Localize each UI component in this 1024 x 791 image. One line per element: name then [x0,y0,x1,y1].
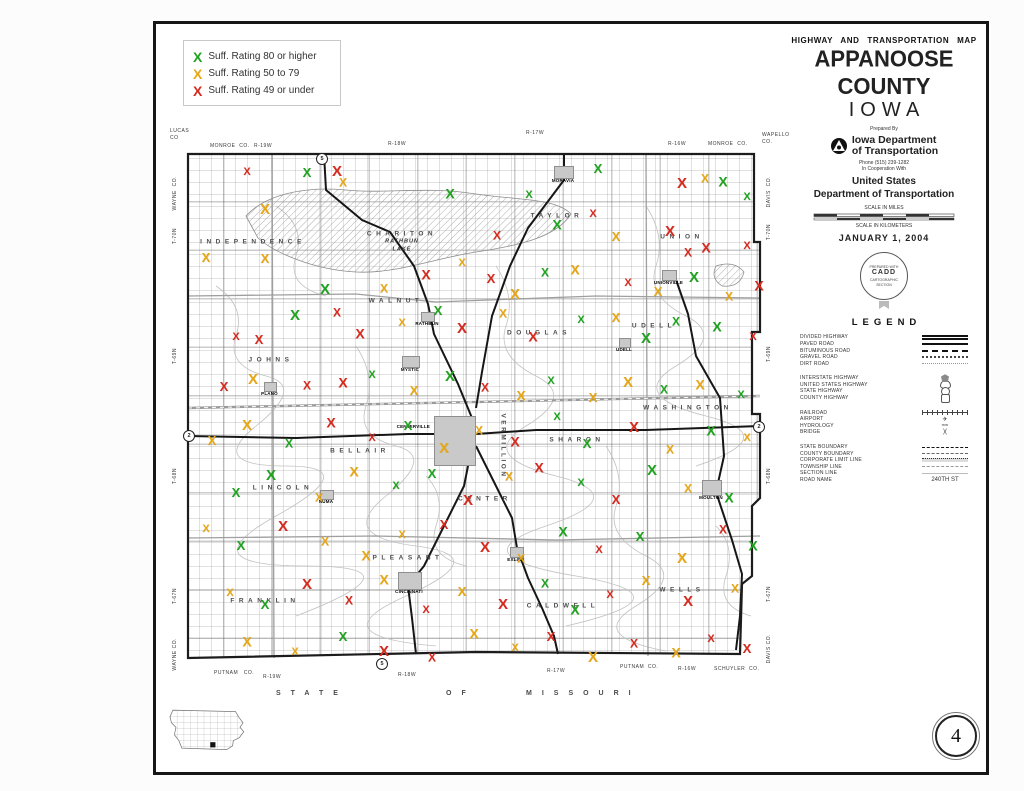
sufficiency-mark-r: X [719,523,727,535]
sufficiency-mark-g: X [404,419,413,432]
suff-legend-item: XSuff. Rating 50 to 79 [193,65,331,82]
sufficiency-mark-g: X [303,166,312,179]
legend-symbol-county-boundary-icon [920,451,970,457]
legend-label: ROAD NAME [800,477,832,483]
page-number: 4 [935,715,977,757]
scale-miles-label: SCALE IN MILES [784,205,984,211]
legend-row: HYDROLOGY≈≈ [800,423,970,430]
sufficiency-mark-r: X [421,267,430,281]
township-label: DOUGLAS [507,330,571,337]
legend-label: DIRT ROAD [800,361,829,367]
town-area [398,572,422,590]
legend-symbol-bituminous-road-icon [920,348,970,354]
town-label: UDELL [616,347,632,352]
sufficiency-mark-y: X [208,434,217,447]
agency-line2: of Transportation [852,146,938,157]
sufficiency-mark-g: X [647,463,657,478]
legend-label: PAVED ROAD [800,341,834,347]
sufficiency-mark-y: X [642,574,651,587]
sufficiency-mark-r: X [528,329,537,343]
suff-legend-label: Suff. Rating 80 or higher [208,51,316,62]
sufficiency-mark-g: X [672,315,680,327]
page-number-badge: 4 [932,712,980,760]
legend-row: GRAVEL ROAD [800,354,970,361]
sufficiency-mark-g: X [718,174,727,188]
sufficiency-mark-r: X [612,493,621,506]
township-label: PLEASANT [372,555,443,562]
suff-legend-item: XSuff. Rating 49 or under [193,82,331,99]
sufficiency-mark-y: X [475,424,483,436]
scale-bar: SCALE IN MILES SCALE IN KILOMETERS [784,205,984,229]
edge-label-top: LUCAS CO [170,128,189,141]
legend-swatch [941,374,949,382]
cooperation-line: In Cooperation With [784,166,984,172]
sufficiency-mark-y: X [684,482,692,494]
legend-swatch [922,343,968,346]
sufficiency-mark-y: X [623,375,633,390]
sufficiency-mark-r: X [481,381,489,393]
sufficiency-mark-g: X [541,577,549,589]
sufficiency-mark-y: X [510,287,520,302]
legend-label: GRAVEL ROAD [800,354,838,360]
sufficiency-mark-y: X [731,582,739,594]
legend-swatch [941,394,950,403]
sufficiency-mark-r: X [440,518,449,531]
sufficiency-mark-y: X [398,318,405,329]
edge-label-bottom: R-17W [547,668,565,675]
sufficiency-mark-g: X [724,490,733,504]
legend-swatch [922,410,968,415]
legend-symbol-paved-road-icon [920,341,970,347]
route-shield: 2 [753,421,765,433]
county-title: APPANOOSE COUNTY [784,45,984,100]
sufficiency-mark-g: X [552,217,561,231]
sufficiency-mark-g: X [641,331,651,346]
sufficiency-mark-r: X [754,278,763,292]
town-area [702,480,722,496]
sufficiency-mark-g: X [237,539,246,552]
suff-legend-label: Suff. Rating 50 to 79 [208,68,299,79]
sufficiency-mark-r: X [629,420,639,435]
sufficiency-mark-y: X [517,552,525,564]
sufficiency-mark-r: X [326,415,335,429]
iowa-dot-logo-icon [830,137,848,155]
legend-glyph: ≈≈ [942,423,949,429]
township-label: WALNUT [369,298,424,305]
sufficiency-mark-g: X [541,266,549,278]
sufficiency-mark-y: X [439,441,449,456]
missouri-border-label: OF [446,690,476,697]
sufficiency-mark-y: X [666,443,674,455]
sufficiency-mark-g: X [706,423,715,437]
scale-km-label: SCALE IN KILOMETERS [784,223,984,229]
edge-label-top: R-16W [668,141,686,148]
legend-row: BRIDGE)( [800,429,970,436]
legend-row: COUNTY HIGHWAY [800,395,970,402]
sufficiency-mark-g: X [547,376,554,387]
sufficiency-mark-r: X [487,272,496,285]
legend-row: TOWNSHIP LINE [800,464,970,471]
edge-label-top: R-19W [254,143,272,150]
suff-legend-label: Suff. Rating 49 or under [208,85,314,96]
legend-label: BRIDGE [800,429,820,435]
sufficiency-mark-y: X [260,202,270,217]
sufficiency-mark-y: X [654,285,663,298]
sufficiency-mark-y: X [588,650,598,665]
map-annotations: INDEPENDENCECHARITONTAYLORUNIONJOHNSWALN… [176,146,776,686]
township-label: UDELL [632,323,676,330]
sufficiency-mark-y: X [380,282,388,294]
iowa-locator-inset [164,704,246,763]
sufficiency-mark-g: X [266,468,276,483]
sufficiency-mark-y: X [570,262,579,276]
sufficiency-mark-r: X [232,332,239,343]
sufficiency-mark-y: X [202,251,211,264]
us-dot-name: United States Department of Transportati… [784,176,984,201]
sufficiency-mark-g: X [748,538,757,552]
sufficiency-mark-r: X [606,590,613,601]
sufficiency-mark-y: X [612,230,621,243]
sufficiency-mark-y: X [379,572,388,586]
seal-ribbon [879,301,889,309]
legend-items: DIVIDED HIGHWAYPAVED ROADBITUMINOUS ROAD… [784,334,984,483]
legend-label: AIRPORT [800,416,824,422]
sufficiency-mark-r: X [743,642,752,655]
missouri-border-label: STATE [276,690,348,697]
sufficiency-mark-g: X [660,383,668,395]
edge-label-right: T-67N [766,586,773,602]
legend-symbol-road-name-icon: 240TH ST [920,477,970,483]
sufficiency-mark-g: X [583,437,592,450]
sufficiency-mark-y: X [612,311,621,324]
edge-label-bottom: PUTNAM CO. [620,664,658,671]
sufficiency-mark-g: X [285,437,293,449]
sufficiency-mark-r: X [624,278,631,289]
sufficiency-mark-g: X [558,524,567,538]
sufficiency-mark-r: X [345,594,353,606]
township-label: BELLAIR [330,448,390,455]
township-label: CALDWELL [527,603,599,610]
legend-symbol-section-line-icon [920,470,970,476]
appanoose-highlight [210,742,215,747]
sufficiency-mark-y: X [505,470,513,482]
route-shield: 5 [316,153,328,165]
edge-label-left: WAYNE CO. [172,176,179,210]
sufficiency-mark-y: X [677,551,687,566]
legend-label: COUNTY BOUNDARY [800,451,854,457]
sufficiency-mark-r: X [707,634,714,645]
sufficiency-mark-g: X [290,308,300,323]
legend-swatch [922,458,968,462]
sufficiency-mark-y: X [398,530,405,541]
sufficiency-mark-g: X [636,530,645,543]
edge-label-right: DAVIS CO. [766,634,773,663]
sufficiency-mark-g: X [737,390,744,401]
sufficiency-mark-y: X [516,388,525,402]
sufficiency-mark-r: X [422,605,429,616]
legend-row: DIVIDED HIGHWAY [800,334,970,341]
legend-symbol-hydrology-icon: ≈≈ [920,423,970,429]
sufficiency-mark-g: X [392,481,399,492]
township-label: CHARITON [367,231,437,238]
edge-label-right: T-68N [766,468,773,484]
edge-label-top: R-18W [388,141,406,148]
legend-symbol-township-line-icon [920,464,970,470]
sufficiency-mark-g: X [570,602,579,616]
township-label: SHARON [549,437,604,444]
sufficiency-mark-y: X [202,524,209,535]
legend-symbol-state-boundary-icon [920,444,970,450]
legend-label: BITUMINOUS ROAD [800,348,850,354]
sufficiency-mark-g: X [368,370,375,381]
edge-label-bottom: R-19W [263,674,281,681]
sufficiency-mark-r: X [278,519,288,534]
edge-label-bottom: PUTNAM CO. [214,670,254,677]
legend-label: STATE BOUNDARY [800,444,848,450]
lake-label-line2: LAKE [385,246,419,254]
sufficiency-mark-y: X [242,634,251,648]
sufficiency-mark-y: X [291,647,298,658]
sufficiency-mark-g: X [445,186,454,200]
sufficiency-mark-g: X [320,282,330,297]
title-block: HIGHWAY AND TRANSPORTATION MAP APPANOOSE… [784,36,984,483]
state-title: IOWA [784,99,984,122]
legend-label: UNITED STATES HIGHWAY [800,382,868,388]
town-label: CENTERVILLE [397,424,430,429]
suff-legend-item: XSuff. Rating 80 or higher [193,48,331,65]
sufficiency-mark-r: X [677,176,687,191]
edge-label-left: T-70N [172,228,179,244]
sufficiency-mark-r: X [493,229,501,241]
route-shield: 5 [376,658,388,670]
sufficiency-mark-r: X [498,597,508,612]
legend-row: DIRT ROAD [800,360,970,367]
x-mark-icon: X [193,84,202,98]
sufficiency-mark-g: X [577,478,584,489]
sufficiency-mark-g: X [445,369,455,384]
legend-swatch [922,350,968,352]
legend-row: INTERSTATE HIGHWAY [800,375,970,382]
sufficiency-mark-g: X [232,486,241,499]
route-shield: 2 [183,430,195,442]
sufficiency-mark-r: X [683,594,693,609]
sufficiency-mark-r: X [547,630,556,643]
sufficiency-mark-r: X [255,333,264,346]
missouri-border-label: MISSOURI [526,690,641,697]
map-sheet: XSuff. Rating 80 or higherXSuff. Rating … [153,21,989,775]
edge-label-bottom: SCHUYLER CO. [714,666,759,673]
sufficiency-mark-r: X [220,380,229,393]
sufficiency-mark-y: X [458,258,465,269]
seal-line2: CADD [872,269,896,278]
sufficiency-mark-g: X [577,315,584,326]
sufficiency-mark-r: X [589,209,596,220]
sufficiency-mark-y: X [725,290,733,302]
legend-row: BITUMINOUS ROAD [800,347,970,354]
sufficiency-mark-g: X [428,467,437,480]
sufficiency-mark-y: X [671,645,680,659]
legend-label: RAILROAD [800,410,827,416]
sufficiency-mark-y: X [242,418,252,433]
legend-row: STATE BOUNDARY [800,444,970,451]
legend-glyph: )( [943,429,947,435]
town-label: MORAVIA [552,178,574,183]
legend-gap [800,436,970,444]
legend-symbol-interstate-highway-icon [920,375,970,381]
legend-row: PAVED ROAD [800,341,970,348]
sufficiency-mark-r: X [595,545,602,556]
sufficiency-mark-r: X [665,224,675,239]
legend-row: AIRPORT✈ [800,416,970,423]
seal-line4: SECTION [876,283,892,287]
edge-label-bottom: R-16W [678,666,696,673]
sufficiency-mark-r: X [684,246,692,258]
x-mark-icon: X [193,67,202,81]
edge-label-left: T-68N [172,468,179,484]
x-mark-icon: X [193,50,202,64]
sufficiency-mark-r: X [457,321,467,336]
sufficiency-mark-y: X [695,377,704,391]
sufficiency-mark-g: X [594,162,603,175]
township-label: JOHNS [249,357,294,364]
edge-label-right: T-69N [766,346,773,362]
legend-label: HYDROLOGY [800,423,834,429]
sufficiency-mark-y: X [248,372,258,387]
sufficiency-mark-g: X [553,412,560,423]
sufficiency-mark-g: X [689,270,699,285]
cadd-seal: PREPARED WITH CADD CARTOGRAPHIC SECTION [860,252,908,300]
legend-symbol-bridge-icon: )( [920,429,970,435]
prepared-by-label: Prepared By [784,126,984,132]
sufficiency-mark-g: X [712,319,721,333]
legend-label: INTERSTATE HIGHWAY [800,375,859,381]
sufficiency-mark-y: X [511,643,518,654]
edge-label-top: MONROE CO. [210,143,250,150]
sufficiency-mark-r: X [333,306,341,318]
legend-swatch [922,447,968,448]
edge-label-top: R-17W [526,130,544,137]
sufficiency-mark-g: X [525,190,532,201]
legend-swatch [922,363,968,364]
legend-label: CORPORATE LIMIT LINE [800,457,862,463]
agency-row: Iowa Department of Transportation [784,135,984,157]
legend-swatch [922,473,968,474]
sufficiency-mark-r: X [480,540,490,555]
town-label: RATHBUN [415,321,438,326]
sufficiency-mark-y: X [261,252,270,265]
sufficiency-mark-g: X [261,598,270,611]
legend-row: CORPORATE LIMIT LINE [800,457,970,464]
edge-label-bottom: R-18W [398,672,416,679]
edge-label-left: T-69N [172,348,179,364]
legend-symbol-county-highway-icon [920,395,970,401]
sufficiency-mark-r: X [743,241,750,252]
legend-swatch [922,356,968,358]
town-label: CINCINNATI [395,589,423,594]
sufficiency-mark-r: X [463,493,473,508]
legend-heading: LEGEND [784,317,984,328]
edge-label-left: T-67N [172,588,179,604]
legend-symbol-airport-icon: ✈ [920,416,970,422]
legend-swatch [922,335,968,340]
sufficiency-mark-y: X [410,384,419,397]
sufficiency-mark-r: X [338,375,347,389]
legend-label: TOWNSHIP LINE [800,464,842,470]
sufficiency-mark-r: X [701,240,710,254]
legend-symbol-dirt-road-icon [920,361,970,367]
sufficiency-mark-y: X [499,307,507,319]
township-label: LINCOLN [253,485,313,492]
sufficiency-mark-y: X [589,391,598,404]
sufficiency-mark-y: X [361,548,370,562]
sufficiency-mark-g: X [743,192,750,203]
sufficiency-mark-r: X [368,433,375,444]
legend-label: STATE HIGHWAY [800,388,843,394]
legend-symbol-railroad-icon [920,410,970,416]
legend-row: COUNTY BOUNDARY [800,450,970,457]
town-label: MYSTIC [401,367,419,372]
sufficiency-mark-r: X [303,379,311,391]
township-label: WASHINGTON [643,405,733,412]
edge-label-right: DAVIS CO. [766,176,773,207]
county-map: INDEPENDENCECHARITONTAYLORUNIONJOHNSWALN… [170,124,786,706]
township-label: INDEPENDENCE [200,239,306,246]
sufficiency-mark-r: X [749,332,756,343]
edge-label-right: T-70N [766,224,773,240]
sufficiency-mark-r: X [355,326,364,340]
sufficiency-mark-r: X [243,167,250,178]
sufficiency-mark-r: X [534,460,543,474]
town-label: MOULTON [699,495,723,500]
sufficiency-mark-r: X [428,651,436,663]
sufficiency-mark-y: X [701,172,709,184]
sufficiency-mark-g: X [434,304,443,317]
legend-row: ROAD NAME240TH ST [800,477,970,484]
sufficiency-mark-r: X [510,434,519,448]
scale-ruler [809,212,959,222]
lake-label: RATHBUNLAKE [385,238,419,253]
legend-gap [800,367,970,375]
sufficiency-mark-y: X [226,588,233,599]
edge-label-left: WAYNE CO. [172,638,179,671]
legend-label: DIVIDED HIGHWAY [800,334,848,340]
sufficiency-mark-y: X [458,585,467,598]
map-type-title: HIGHWAY AND TRANSPORTATION MAP [784,36,984,45]
legend-symbol-corporate-limit-line-icon [920,457,970,463]
legend-swatch [922,453,968,454]
sufficiency-mark-r: X [379,644,389,659]
sufficiency-mark-y: X [743,433,750,444]
legend-symbol-gravel-road-icon [920,354,970,360]
legend-glyph: ✈ [942,416,947,423]
sufficiency-mark-r: X [302,577,312,592]
town-label: PLANO [261,391,278,396]
map-date: JANUARY 1, 2004 [784,233,984,243]
lake-label-line1: RATHBUN [385,238,419,246]
sufficiency-legend: XSuff. Rating 80 or higherXSuff. Rating … [183,40,341,106]
sufficiency-mark-y: X [321,535,329,547]
legend-symbol-divided-highway-icon [920,334,970,340]
legend-row: SECTION LINE [800,470,970,477]
us-line1: United States [784,176,984,189]
sufficiency-mark-y: X [349,464,358,478]
agency-name: Iowa Department of Transportation [852,135,938,157]
us-line2: Department of Transportation [784,189,984,202]
legend-label: COUNTY HIGHWAY [800,395,849,401]
sufficiency-mark-g: X [339,630,348,643]
legend-swatch [922,466,968,467]
sufficiency-mark-y: X [315,491,323,503]
